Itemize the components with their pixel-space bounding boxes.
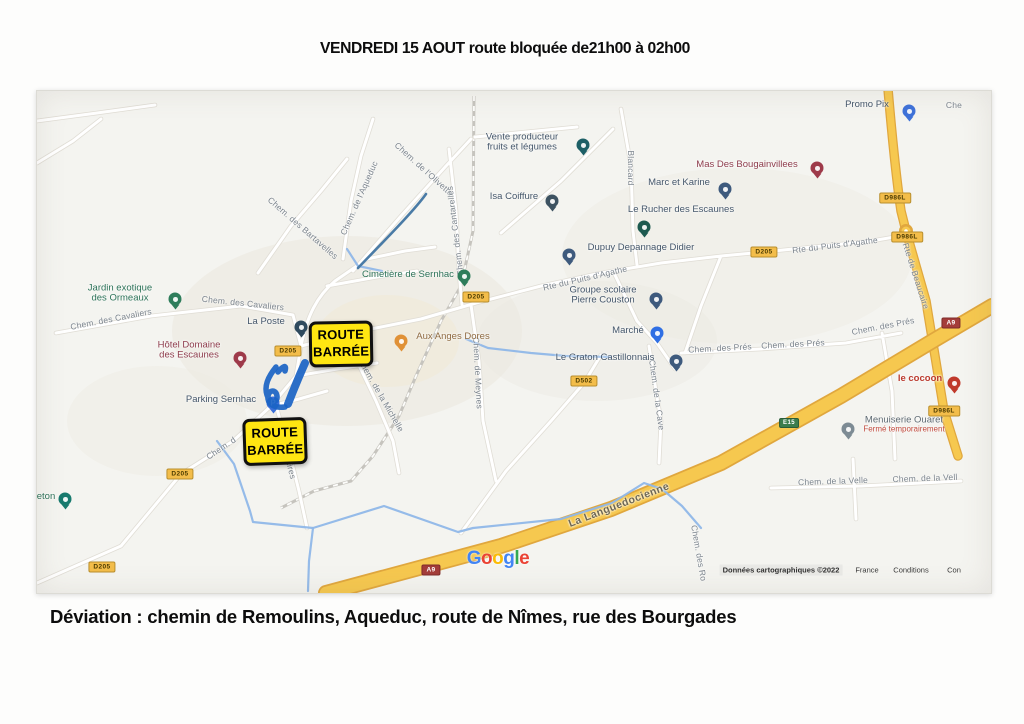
map-photo: Chem. des BartavellesChem. de l'AqueducC… bbox=[36, 90, 992, 594]
blue-scribble-stroke bbox=[288, 363, 305, 404]
deviation-caption: Déviation : chemin de Remoulins, Aqueduc… bbox=[50, 606, 736, 628]
flyer-page: { "title": "VENDREDI 15 AOUT route bloqu… bbox=[0, 0, 1024, 724]
page-title: VENDREDI 15 AOUT route bloquée de21h00 à… bbox=[10, 40, 1000, 58]
blue-scribble-hook bbox=[278, 367, 286, 372]
hand-drawn-marks bbox=[37, 91, 991, 593]
